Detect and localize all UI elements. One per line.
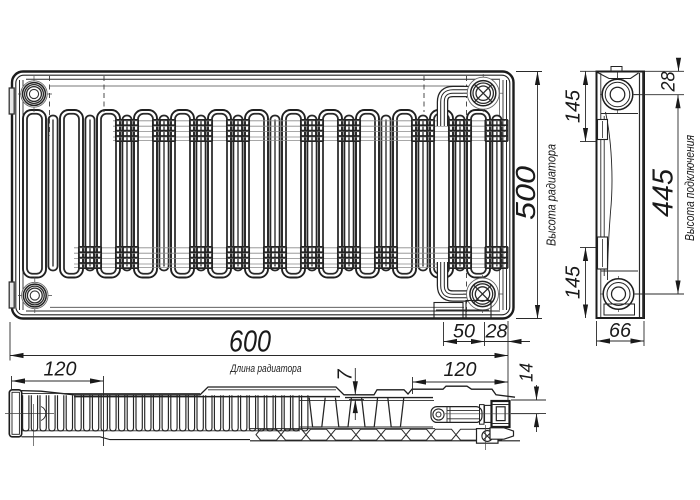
svg-text:145: 145 xyxy=(563,89,585,123)
svg-text:120: 120 xyxy=(44,359,77,381)
svg-text:Высота радиатора: Высота радиатора xyxy=(545,144,559,246)
svg-text:7: 7 xyxy=(335,369,357,381)
svg-text:50: 50 xyxy=(453,321,475,343)
svg-text:445: 445 xyxy=(648,168,680,217)
svg-text:14: 14 xyxy=(517,363,537,382)
svg-text:145: 145 xyxy=(563,265,585,299)
svg-text:28: 28 xyxy=(484,321,507,343)
svg-text:120: 120 xyxy=(444,359,477,381)
svg-text:28: 28 xyxy=(658,71,680,92)
svg-text:Длина радиатора: Длина радиатора xyxy=(229,363,301,375)
svg-text:500: 500 xyxy=(510,166,541,220)
svg-text:66: 66 xyxy=(609,320,632,342)
svg-text:600: 600 xyxy=(229,324,271,359)
svg-text:Высота подключения: Высота подключения xyxy=(683,135,697,241)
